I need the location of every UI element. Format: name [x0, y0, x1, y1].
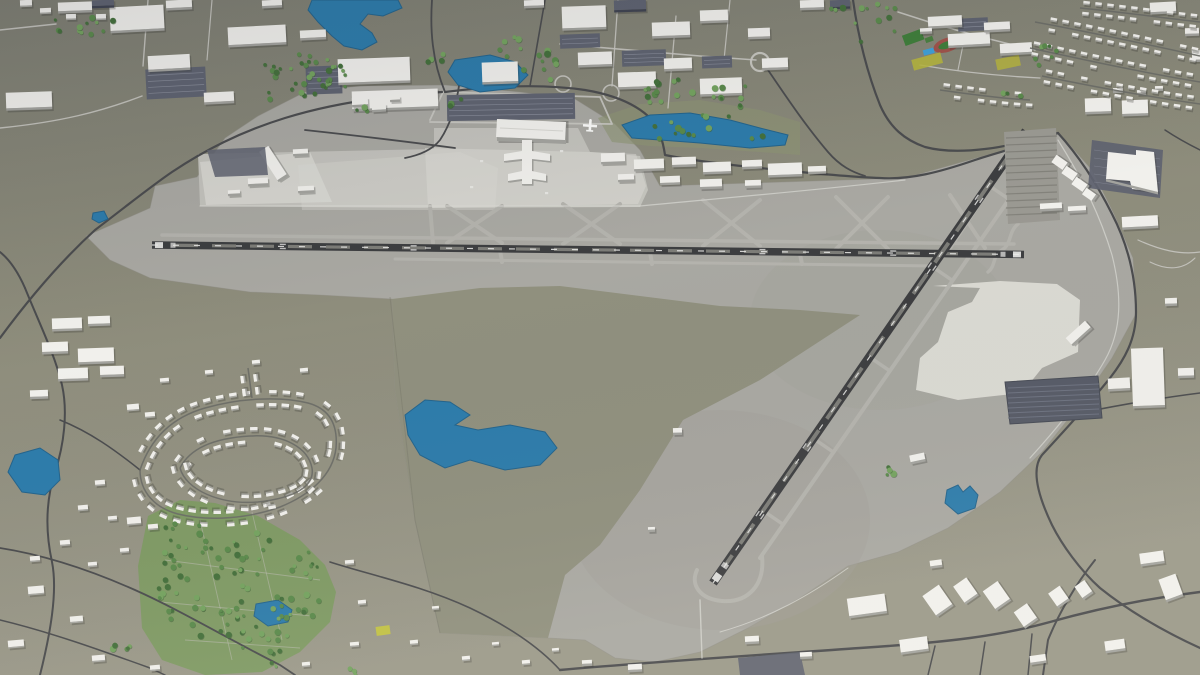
scene-lighting-overlay: [0, 0, 1200, 675]
3d-map-viewport[interactable]: [0, 0, 1200, 675]
airport-3d-scene: [0, 0, 1200, 675]
